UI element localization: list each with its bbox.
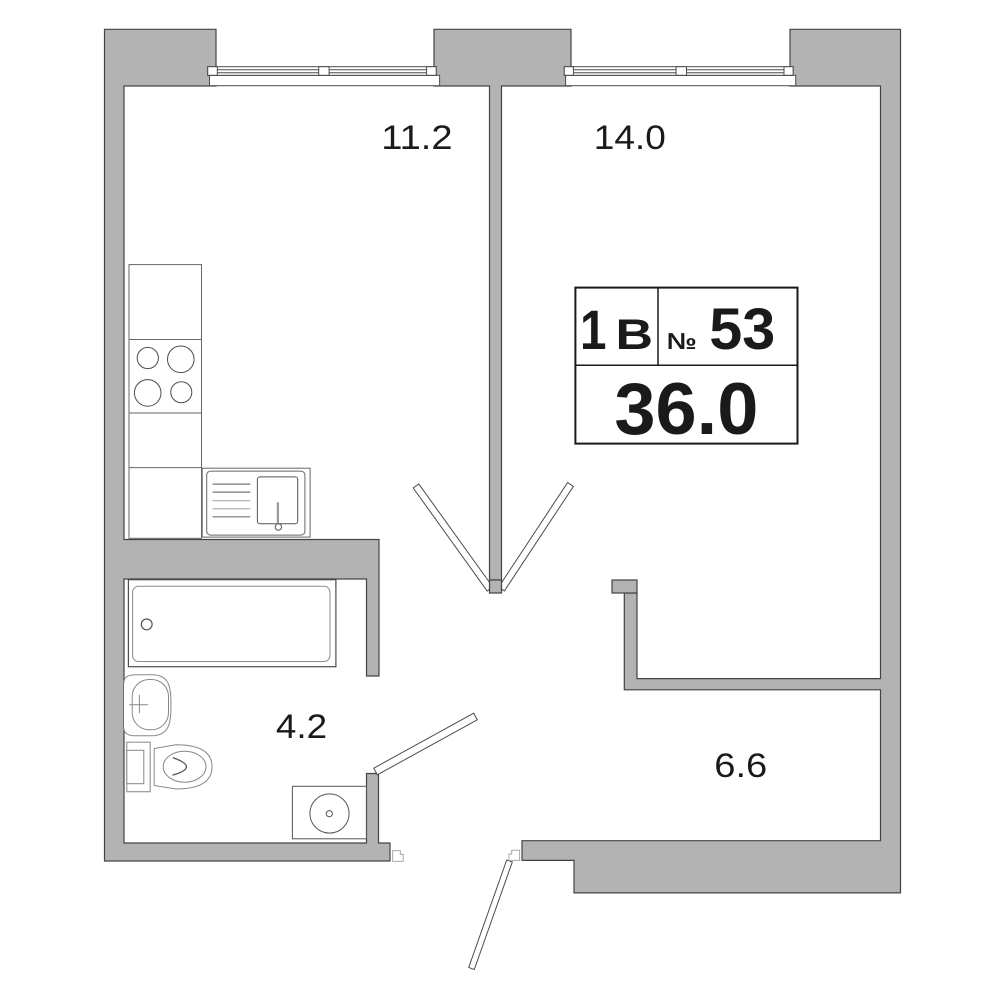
svg-text:№: № <box>667 328 697 354</box>
svg-text:36.0: 36.0 <box>614 369 758 450</box>
svg-text:В: В <box>616 312 654 359</box>
svg-text:6.6: 6.6 <box>714 747 767 785</box>
svg-text:53: 53 <box>709 297 775 362</box>
svg-text:1: 1 <box>580 298 607 361</box>
svg-text:4.2: 4.2 <box>276 708 327 746</box>
svg-text:11.2: 11.2 <box>381 119 452 157</box>
svg-text:14.0: 14.0 <box>594 119 666 157</box>
